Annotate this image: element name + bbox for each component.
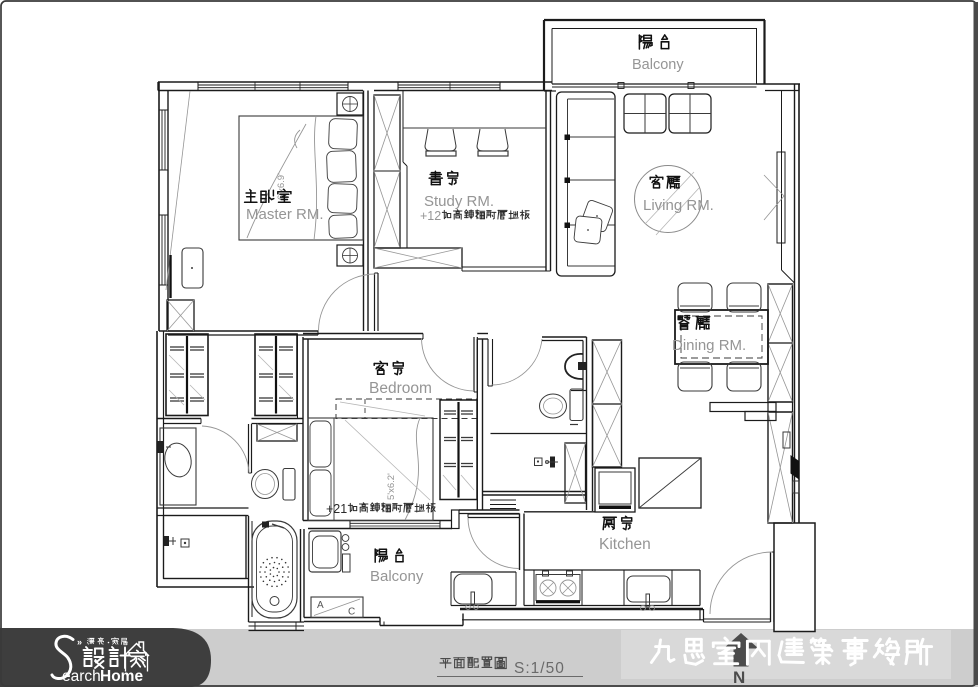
svg-text:C: C [348,607,355,618]
svg-text:Bedroom: Bedroom [369,380,432,397]
svg-text:N: N [733,668,745,687]
svg-text:Living RM.: Living RM. [643,197,714,214]
svg-text:S:1/50: S:1/50 [514,660,565,677]
svg-text:Balcony: Balcony [632,57,684,73]
svg-text:+12: +12 [420,209,441,223]
svg-text:Study RM.: Study RM. [424,193,494,210]
svg-text:»: » [77,637,82,647]
svg-text:Home: Home [100,668,143,685]
svg-text:Balcony: Balcony [370,568,424,585]
svg-text:5'x6.2': 5'x6.2' [386,473,397,500]
svg-text:earch: earch [62,668,101,685]
svg-text:Master RM.: Master RM. [246,206,324,223]
svg-text:Kitchen: Kitchen [599,536,651,553]
svg-text:Dining RM.: Dining RM. [672,337,746,354]
svg-text:6'x6.9': 6'x6.9' [276,173,287,200]
svg-text:+21: +21 [326,502,347,516]
svg-text:A: A [317,600,324,611]
